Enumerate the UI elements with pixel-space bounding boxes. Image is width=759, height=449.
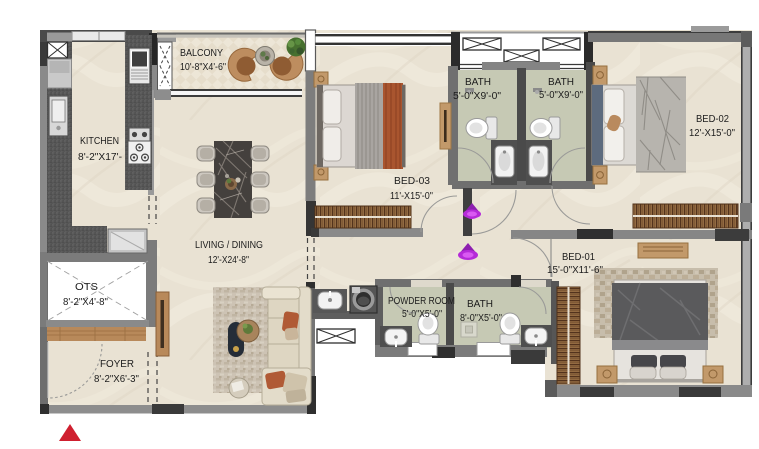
svg-text:12'-X24'-8": 12'-X24'-8" — [208, 255, 249, 266]
svg-text:BALCONY: BALCONY — [180, 47, 223, 59]
svg-text:5'-0"X9'-0": 5'-0"X9'-0" — [453, 91, 501, 102]
svg-text:FOYER: FOYER — [100, 358, 134, 370]
svg-text:BATH: BATH — [467, 298, 493, 310]
svg-text:KITCHEN: KITCHEN — [80, 135, 119, 147]
svg-text:12'-X15'-0": 12'-X15'-0" — [689, 128, 735, 139]
svg-text:15'-0"X11'-6": 15'-0"X11'-6" — [547, 265, 603, 276]
svg-text:8'-2"X4'-8": 8'-2"X4'-8" — [63, 297, 108, 308]
svg-text:8'-0"X5'-0": 8'-0"X5'-0" — [460, 313, 502, 324]
svg-text:BED-02: BED-02 — [696, 113, 729, 125]
svg-text:5'-0"X5'-0": 5'-0"X5'-0" — [402, 309, 442, 320]
svg-text:8'-2"X17'-: 8'-2"X17'- — [78, 152, 122, 163]
svg-text:BATH: BATH — [548, 76, 574, 88]
svg-text:8'-2"X6'-3": 8'-2"X6'-3" — [94, 374, 139, 385]
svg-text:OTS: OTS — [75, 281, 98, 293]
svg-text:BATH: BATH — [465, 76, 491, 88]
svg-text:BED-03: BED-03 — [394, 175, 430, 187]
svg-text:LIVING / DINING: LIVING / DINING — [195, 239, 263, 251]
svg-text:BED-01: BED-01 — [562, 251, 595, 263]
svg-text:POWDER ROOM: POWDER ROOM — [388, 295, 455, 307]
svg-text:10'-8"X4'-6": 10'-8"X4'-6" — [180, 62, 226, 73]
svg-text:11'-X15'-0": 11'-X15'-0" — [390, 191, 433, 202]
svg-text:5'-0"X9'-0": 5'-0"X9'-0" — [539, 90, 583, 101]
